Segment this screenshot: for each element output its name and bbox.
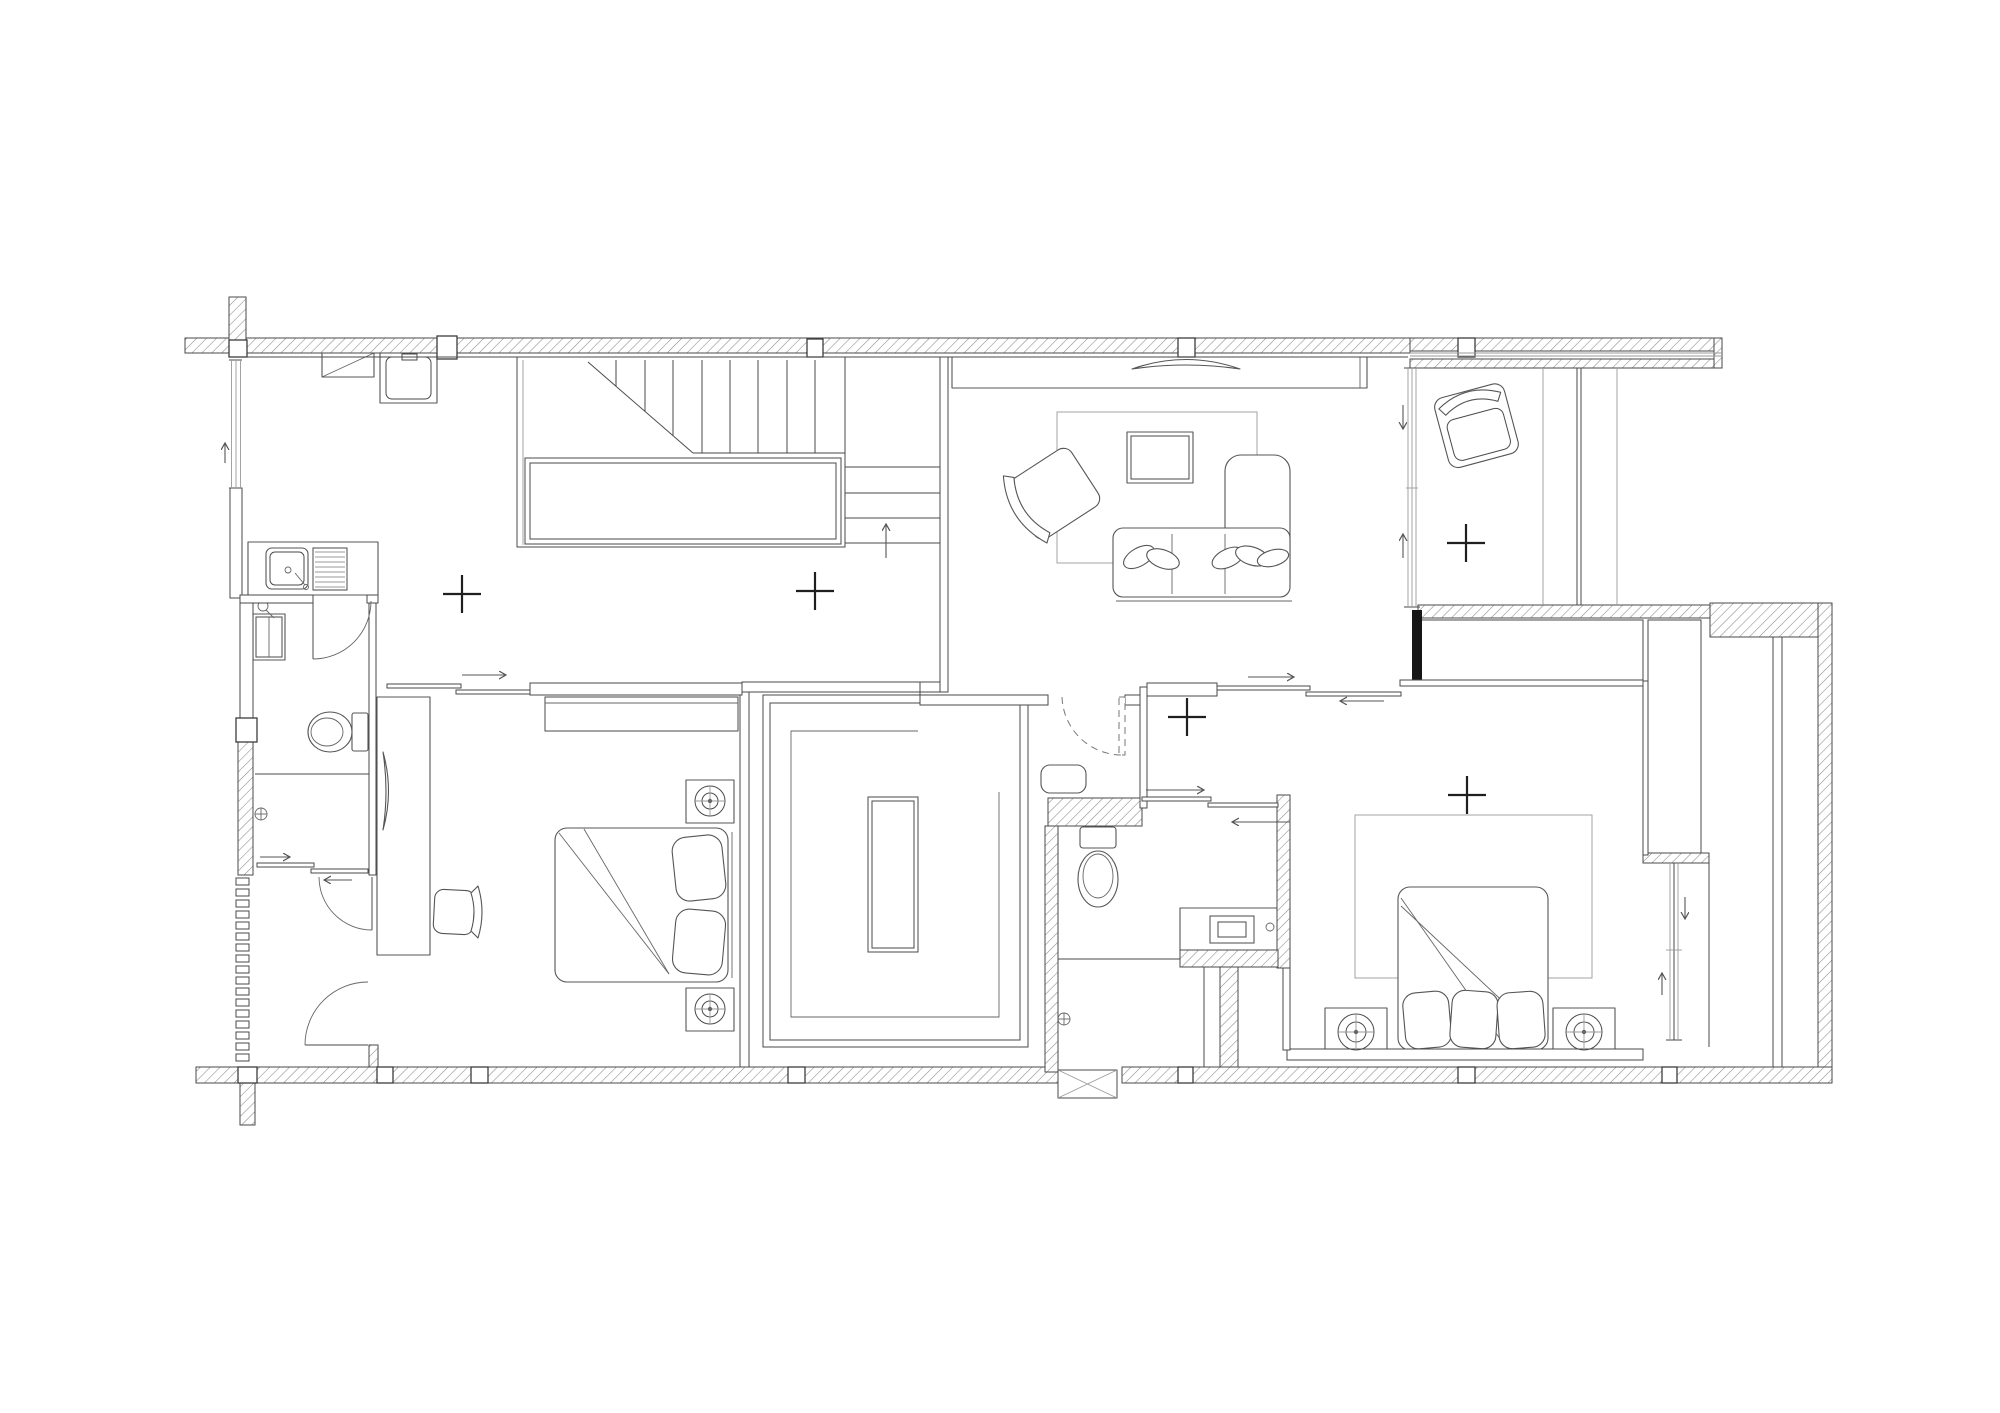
- wall-stair-hall: [940, 357, 948, 692]
- wall-corridor-b: [920, 695, 1048, 705]
- wall-top: [185, 338, 1410, 353]
- wall-west-mid: [238, 742, 253, 875]
- door-swing-vestibule-s: [305, 982, 368, 1045]
- louver-slat: [236, 944, 249, 951]
- column: [1458, 1067, 1475, 1083]
- walk-in-closet-outline: [763, 695, 1028, 1047]
- column: [437, 336, 457, 359]
- column: [807, 339, 823, 357]
- stair-landing: [525, 458, 841, 544]
- column: [788, 1067, 805, 1083]
- wall-east: [1818, 603, 1832, 1083]
- walk-in-closet-u: [791, 731, 999, 1017]
- wall-bath2-west: [1045, 826, 1058, 1072]
- toilet-2-bowl: [1078, 851, 1118, 907]
- wall-bath2-pier: [1220, 967, 1238, 1067]
- column: [1178, 1067, 1193, 1083]
- bed-1-pillow: [671, 834, 727, 903]
- column: [1458, 338, 1475, 357]
- wall-vestibule-east: [1140, 687, 1147, 808]
- louver-slat: [236, 1021, 249, 1028]
- walk-in-closet-lining: [770, 703, 1020, 1040]
- master-closet-north: [1415, 620, 1643, 681]
- door-swing-bath1: [313, 601, 371, 659]
- wall-bottom-west: [196, 1067, 1058, 1083]
- louver-slat: [236, 922, 249, 929]
- closet-island: [868, 797, 918, 952]
- louver-slat: [236, 1032, 249, 1039]
- staircase-outline: [517, 357, 845, 547]
- louver-slat: [236, 955, 249, 962]
- wall-bath1-east: [369, 597, 376, 875]
- wall-bedroom1-east: [740, 683, 749, 1067]
- floorplan-page: Residential floor plan — line drawing (n…: [0, 0, 2000, 1413]
- master-bed-pillow: [1496, 990, 1546, 1049]
- wall-balcony-divider: [1418, 605, 1710, 618]
- master-bed-pillow: [1449, 989, 1499, 1049]
- louver-slat: [236, 889, 249, 896]
- sliding-door-panel: [257, 863, 314, 867]
- sliding-door-panel: [456, 690, 530, 694]
- louver-slat: [236, 933, 249, 940]
- stair-landing-inner: [530, 463, 836, 539]
- sliding-door-panel: [1208, 803, 1278, 807]
- floorplan-drawing: [185, 297, 1832, 1125]
- column: [1178, 338, 1195, 357]
- wall-solid-column: [1412, 610, 1422, 683]
- wall-northeast: [1710, 603, 1832, 637]
- lamp-center: [1582, 1030, 1586, 1034]
- headboard-platform: [1287, 1049, 1643, 1060]
- sliding-door-panel: [1306, 692, 1401, 696]
- wall-closet-cap: [1643, 853, 1709, 863]
- sliding-door-panel: [1217, 686, 1310, 690]
- armchair-seat: [1003, 444, 1104, 542]
- wall-master-north: [1147, 683, 1217, 696]
- louver-slat: [236, 878, 249, 885]
- wall-stub-southwest: [240, 1083, 255, 1125]
- parapet-inner: [1410, 359, 1722, 368]
- kitchen-sink: [266, 548, 308, 589]
- master-closet-east: [1648, 620, 1701, 853]
- louver-slat: [236, 977, 249, 984]
- wall-bath1-north-a: [240, 595, 313, 603]
- wall-corridor-c: [1125, 695, 1142, 705]
- door-swing-vestibule-n: [319, 877, 372, 930]
- master-bed-pillow: [1402, 990, 1453, 1050]
- louver-slat: [236, 1043, 249, 1050]
- column: [471, 1067, 488, 1083]
- closet-front-east: [1643, 681, 1648, 855]
- bathroom-2-vanity: [1180, 908, 1278, 950]
- floor-mat: [1041, 765, 1086, 793]
- louver-slat: [236, 988, 249, 995]
- wall-stub-northwest: [229, 297, 246, 340]
- wall-bath1-north-b: [367, 595, 378, 603]
- desk-chair-seat: [433, 889, 475, 935]
- stair-break-line: [588, 362, 693, 453]
- column: [238, 1067, 257, 1083]
- wall-west-upper: [230, 488, 242, 598]
- column: [377, 1067, 393, 1083]
- wall-corridor-a: [742, 682, 940, 692]
- column: [229, 340, 247, 357]
- wall-bath2-east-lower: [1283, 968, 1290, 1050]
- wall-vestibule-pier: [369, 1045, 378, 1067]
- toilet-2-tank: [1080, 827, 1116, 848]
- wall-bath2-east: [1277, 795, 1290, 968]
- wall-bottom-east: [1122, 1067, 1832, 1083]
- closet-front-north: [1400, 680, 1643, 686]
- louver-slat: [236, 911, 249, 918]
- lamp-center: [708, 799, 712, 803]
- bed-1-pillow: [671, 908, 726, 976]
- toilet-1-tank: [352, 713, 368, 751]
- concealed-door-swing: [1062, 697, 1122, 755]
- floorplan-svg: [0, 0, 2000, 1413]
- louver-slat: [236, 900, 249, 907]
- louver-slat: [236, 999, 249, 1006]
- desk: [377, 697, 430, 955]
- louver-slat: [236, 1054, 249, 1061]
- sliding-door-panel: [1142, 797, 1211, 801]
- louver-slat: [236, 1010, 249, 1017]
- wall-bath2-north: [1048, 798, 1142, 826]
- wall-vanity-support: [1180, 950, 1278, 967]
- concealed-door-leaf: [1119, 697, 1125, 755]
- parapet-outer: [1410, 338, 1722, 351]
- lamp-center: [708, 1007, 712, 1011]
- louver-slat: [236, 966, 249, 973]
- wall-bedroom1-north: [530, 683, 742, 695]
- lamp-center: [1354, 1030, 1358, 1034]
- closet-island-top: [872, 801, 914, 948]
- column: [1662, 1067, 1677, 1083]
- column: [236, 718, 257, 742]
- wall-west-bath: [240, 597, 253, 720]
- sliding-door-panel: [311, 869, 368, 873]
- bedroom-1-wardrobe: [545, 697, 738, 731]
- sliding-door-panel: [387, 684, 461, 688]
- coffee-table: [1127, 432, 1193, 483]
